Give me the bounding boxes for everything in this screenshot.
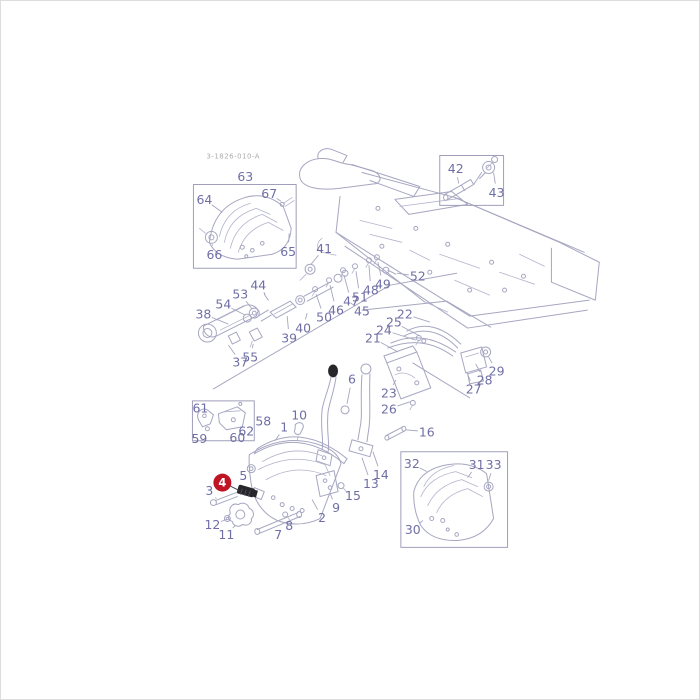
part-label-32: 32 — [404, 456, 420, 471]
highlight-badge-part-4[interactable]: 4 — [213, 474, 239, 492]
leader-line-64 — [212, 205, 223, 213]
part-label-65: 65 — [280, 244, 296, 259]
highlight-leader-line — [229, 486, 239, 491]
leader-line-43 — [494, 173, 496, 184]
part-label-23: 23 — [381, 385, 397, 400]
leader-line-22 — [413, 317, 429, 322]
part-label-55: 55 — [242, 349, 258, 364]
leader-line-32 — [420, 468, 427, 472]
leader-line-41 — [311, 255, 318, 264]
leader-line-13 — [362, 458, 368, 475]
part-label-31: 31 — [469, 457, 485, 472]
lever-knob — [328, 364, 338, 377]
part-label-38: 38 — [195, 307, 211, 322]
leader-line-6 — [347, 388, 350, 404]
part-label-21: 21 — [365, 331, 381, 346]
part-label-58: 58 — [255, 413, 271, 428]
leader-line-14 — [373, 452, 378, 466]
part-label-41: 41 — [316, 241, 332, 256]
part-label-53: 53 — [232, 287, 248, 302]
part-label-67: 67 — [261, 186, 277, 201]
part-label-40: 40 — [295, 321, 311, 336]
leader-line-3 — [215, 497, 216, 498]
part-label-11: 11 — [218, 527, 234, 542]
leader-line-51 — [356, 271, 359, 288]
leader-line-16 — [406, 430, 418, 431]
part-label-6: 6 — [348, 371, 356, 386]
part-label-26: 26 — [381, 401, 397, 416]
leader-line-42 — [457, 177, 458, 183]
part-label-16: 16 — [419, 424, 435, 439]
part-label-33: 33 — [486, 457, 502, 472]
highlight-number: 4 — [218, 476, 226, 490]
part-label-45: 45 — [354, 304, 370, 319]
part-label-13: 13 — [363, 476, 379, 491]
leader-line-39 — [287, 316, 288, 329]
part-label-30: 30 — [405, 522, 421, 537]
part-label-10: 10 — [291, 407, 307, 422]
part-label-9: 9 — [332, 500, 340, 515]
part-label-63: 63 — [237, 169, 253, 184]
leader-line-29 — [489, 357, 492, 363]
part-label-52: 52 — [410, 269, 426, 284]
part-label-64: 64 — [196, 192, 212, 207]
part-label-39: 39 — [281, 331, 297, 346]
part-label-66: 66 — [206, 247, 222, 262]
part-label-43: 43 — [489, 185, 505, 200]
part-label-29: 29 — [489, 363, 505, 378]
part-label-42: 42 — [448, 161, 464, 176]
part-label-3: 3 — [205, 483, 213, 498]
part-label-54: 54 — [215, 297, 231, 312]
part-label-8: 8 — [285, 518, 293, 533]
highlighted-bolt-part — [237, 484, 259, 498]
part-label-44: 44 — [250, 278, 266, 293]
exploded-parts-diagram: 3-1826-010-A — [1, 1, 699, 699]
leader-line-2 — [312, 500, 318, 510]
leader-line-50 — [316, 294, 321, 308]
part-label-7: 7 — [274, 527, 282, 542]
part-label-2: 2 — [318, 510, 326, 525]
part-labels-layer: 6364676665424341524948514746504544535438… — [192, 161, 505, 542]
drawing-number: 3-1826-010-A — [206, 153, 260, 161]
leader-line-37 — [228, 345, 235, 355]
leader-line-33 — [489, 473, 491, 480]
part-label-61: 61 — [192, 400, 208, 415]
leader-line-9 — [330, 494, 332, 500]
leader-line-47 — [344, 275, 349, 292]
leader-line-26 — [397, 402, 409, 406]
leader-line-21 — [381, 342, 398, 352]
part-label-59: 59 — [192, 431, 208, 446]
part-label-50: 50 — [316, 310, 332, 325]
leader-line-55 — [252, 344, 253, 348]
leader-line-67 — [277, 198, 281, 201]
part-label-62: 62 — [238, 423, 254, 438]
part-label-12: 12 — [204, 517, 220, 532]
leader-line-40 — [305, 313, 307, 319]
part-label-15: 15 — [345, 488, 361, 503]
part-label-1: 1 — [280, 419, 288, 434]
leader-line-48 — [369, 265, 370, 281]
parts-diagram-canvas: 3-1826-010-A — [0, 0, 700, 700]
part-label-5: 5 — [239, 468, 247, 483]
